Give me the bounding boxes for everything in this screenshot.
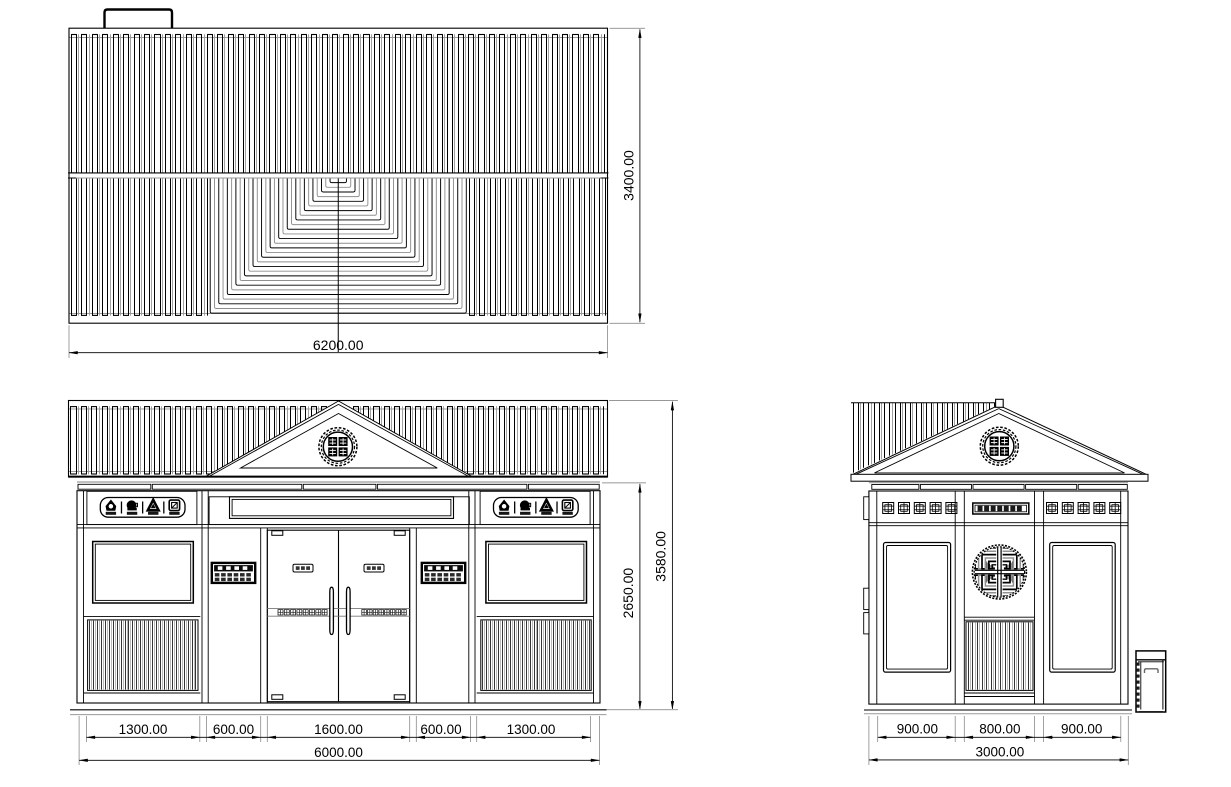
svg-text:1300.00: 1300.00 xyxy=(119,722,168,737)
svg-text:600.00: 600.00 xyxy=(213,722,254,737)
svg-text:800.00: 800.00 xyxy=(979,722,1020,737)
svg-text:1600.00: 1600.00 xyxy=(314,722,363,737)
svg-text:1300.00: 1300.00 xyxy=(507,722,556,737)
svg-text:900.00: 900.00 xyxy=(1061,722,1102,737)
svg-text:600.00: 600.00 xyxy=(420,722,461,737)
svg-text:3580.00: 3580.00 xyxy=(653,531,669,582)
svg-text:6000.00: 6000.00 xyxy=(314,745,363,760)
svg-text:2650.00: 2650.00 xyxy=(620,568,636,619)
svg-text:900.00: 900.00 xyxy=(897,722,938,737)
svg-text:6200.00: 6200.00 xyxy=(313,337,364,353)
svg-text:3000.00: 3000.00 xyxy=(975,745,1024,760)
svg-text:3400.00: 3400.00 xyxy=(621,150,637,201)
